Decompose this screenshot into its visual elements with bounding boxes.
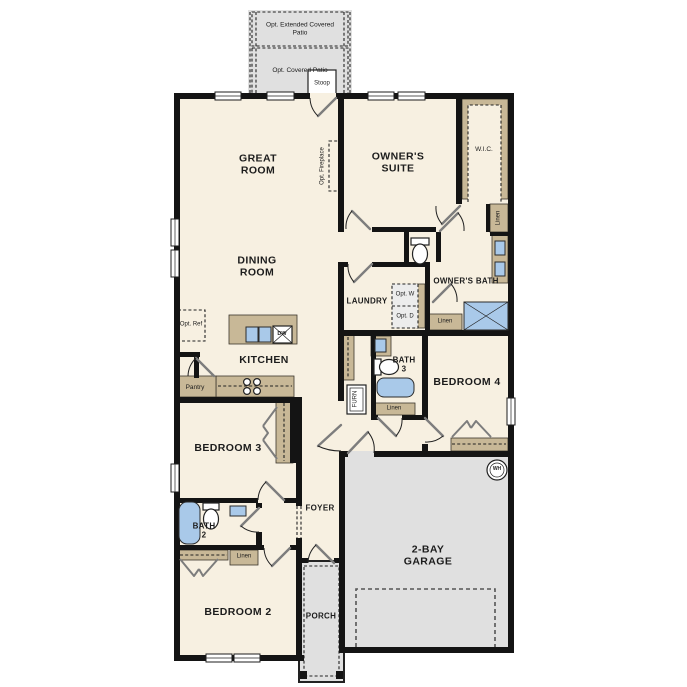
bath2-sink — [230, 506, 246, 516]
furn-label: FURN — [352, 391, 359, 408]
toilet-icon-owners — [411, 238, 429, 264]
opt-covered-patio-label: Opt. Covered Patio — [272, 67, 327, 75]
wic-label: W.I.C. — [475, 146, 493, 154]
bedroom4-label: BEDROOM 4 — [433, 376, 500, 388]
floor-plan-drawing — [0, 0, 687, 687]
dw-label: DW — [277, 331, 286, 337]
foyer-label: FOYER — [305, 503, 334, 512]
bathtub-icon-bath3 — [377, 378, 414, 397]
opt-dryer-label: Opt. D — [394, 313, 416, 320]
bath2-linen-label: Linen — [237, 553, 252, 560]
porch-area — [299, 561, 344, 682]
bedroom2-label: BEDROOM 2 — [204, 606, 271, 618]
porch-label: PORCH — [306, 611, 336, 620]
wh-label: WH — [493, 467, 501, 473]
great-room-label: GREAT ROOM — [226, 153, 290, 178]
laundry-label: LAUNDRY — [347, 296, 388, 305]
stoop-label: Stoop — [314, 80, 330, 87]
bedroom3-label: BEDROOM 3 — [194, 442, 261, 454]
shower-icon — [464, 302, 508, 330]
pantry-label: Pantry — [186, 384, 205, 392]
bath2-label: BATH 2 — [189, 522, 219, 541]
bath3-linen-label: Linen — [387, 405, 402, 412]
owners-suite-label: OWNER'S SUITE — [362, 151, 434, 176]
opt-washer-label: Opt. W — [394, 291, 416, 298]
opt-ref-label: Opt. Ref — [179, 321, 203, 328]
linen-hall-label: Linen — [495, 211, 502, 226]
dining-room-label: DINING ROOM — [225, 255, 289, 280]
garage-label: 2-BAY GARAGE — [393, 544, 463, 569]
owners-bath-linen-label: Linen — [438, 318, 453, 325]
kitchen-label: KITCHEN — [239, 354, 288, 366]
bath3-sink — [375, 339, 386, 352]
kitchen-sink — [246, 327, 271, 342]
opt-fireplace-box — [329, 141, 339, 191]
floor-plan: Opt. Extended Covered Patio Opt. Covered… — [0, 0, 687, 687]
owners-bath-label: OWNER'S BATH — [433, 276, 499, 285]
bath3-label: BATH 3 — [389, 356, 419, 375]
opt-extended-patio-label: Opt. Extended Covered Patio — [258, 21, 342, 36]
opt-fireplace-label: Opt. Fireplace — [319, 147, 326, 185]
